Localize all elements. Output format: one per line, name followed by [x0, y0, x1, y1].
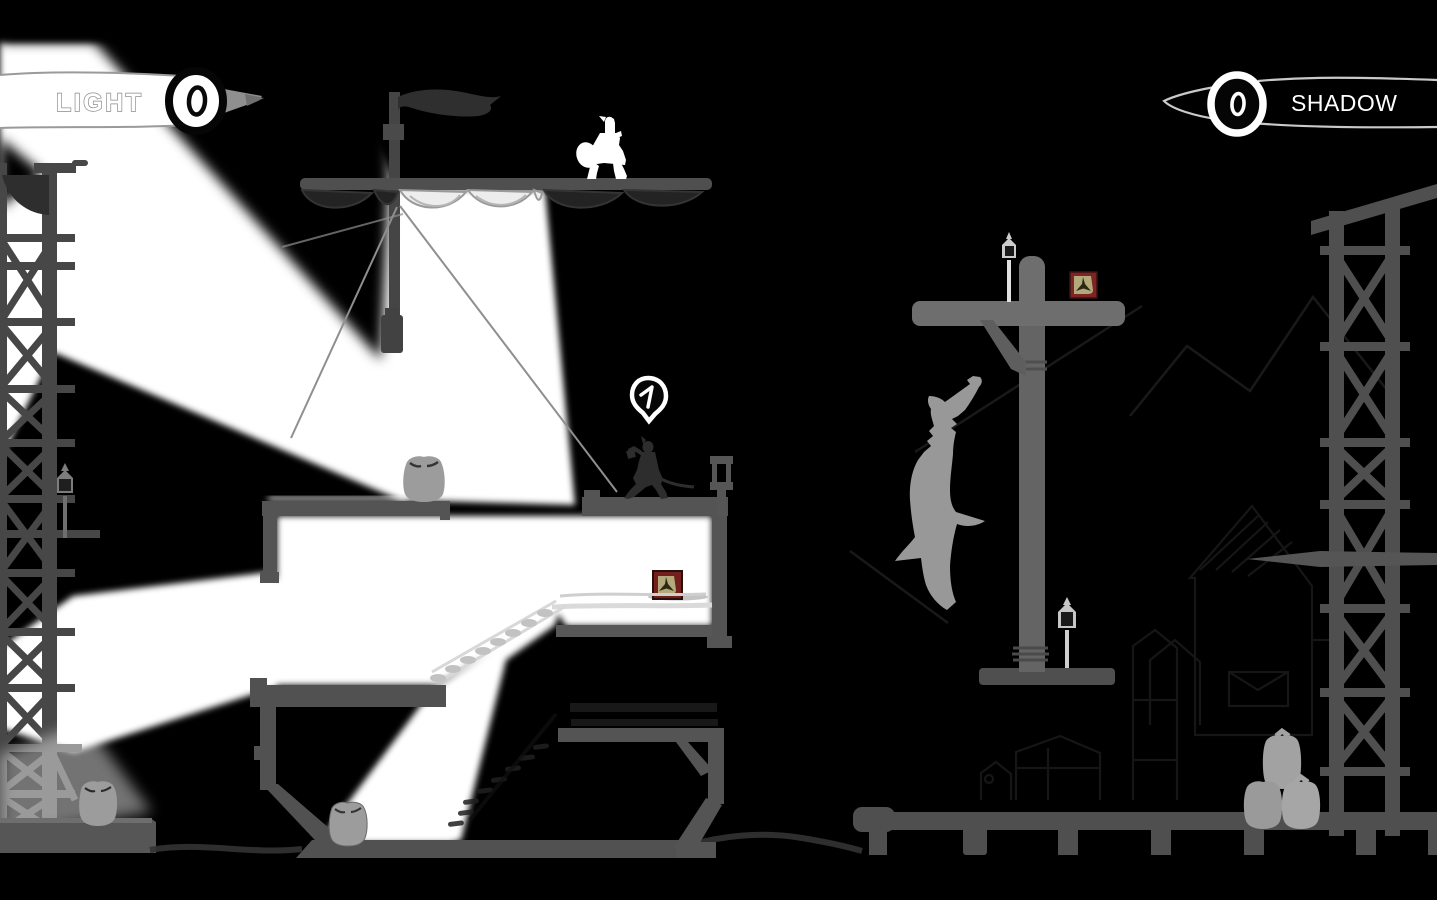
- svg-text:LIGHT: LIGHT: [56, 89, 144, 117]
- svg-text:SHADOW: SHADOW: [1291, 90, 1398, 116]
